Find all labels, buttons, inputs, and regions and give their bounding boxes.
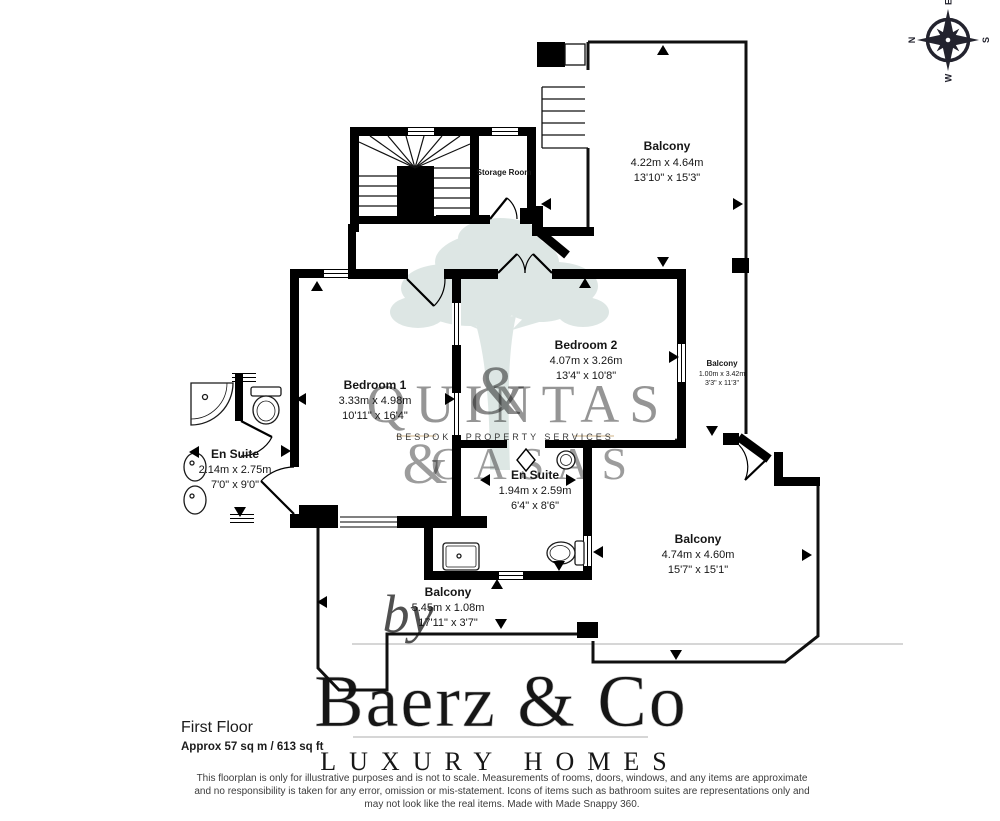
sink xyxy=(184,486,206,514)
room-label-bedroom-2: Bedroom 2 4.07m x 3.26m 13'4" x 10'8" xyxy=(550,338,623,382)
room-metric: 4.22m x 4.64m xyxy=(631,157,704,169)
room-metric: 2.14m x 2.75m xyxy=(199,464,272,476)
window xyxy=(408,127,434,136)
internal-glazed-opening xyxy=(452,303,461,345)
staircase xyxy=(359,136,470,218)
door xyxy=(490,198,517,219)
compass-rose: N E S W xyxy=(907,0,991,82)
brand-line1: QUINTAS xyxy=(367,374,670,434)
room-metric: 1.00m x 3.42m xyxy=(699,371,745,378)
room-metric: 1.94m x 2.59m xyxy=(499,485,572,497)
pillar xyxy=(577,622,598,638)
room-name: Bedroom 2 xyxy=(555,338,618,352)
agency-name: Baerz & Co xyxy=(314,661,687,743)
compass-west-label: W xyxy=(944,73,954,82)
window xyxy=(324,269,348,278)
external-stairs xyxy=(537,42,588,148)
room-label-bedroom-1: Bedroom 1 3.33m x 4.98m 10'11" x 16'4" xyxy=(339,378,412,422)
room-label-balcony-top: Balcony 4.22m x 4.64m 13'10" x 15'3" xyxy=(631,139,704,184)
floor-title: First Floor xyxy=(181,719,254,736)
room-metric: 4.74m x 4.60m xyxy=(662,549,735,561)
compass-east-label: E xyxy=(944,0,954,5)
floor-area: Approx 57 sq m / 613 sq ft xyxy=(181,741,324,753)
pillar xyxy=(732,258,749,273)
window xyxy=(230,514,254,523)
room-label-ensuite-left: En Suite 2.14m x 2.75m 7'0" x 9'0" xyxy=(199,447,272,491)
room-imperial: 13'10" x 15'3" xyxy=(634,172,701,184)
floorplan-page: & QUINTAS BESPOKE PROPERTY SERVICES & CA… xyxy=(0,0,1000,821)
toilet xyxy=(251,387,281,424)
room-label-balcony-small: Balcony 1.00m x 3.42m 3'3" x 11'3" xyxy=(699,359,745,387)
toilet xyxy=(547,541,584,565)
window xyxy=(677,344,686,382)
room-imperial: 17'11" x 3'7" xyxy=(418,617,478,629)
disclaimer-line-1: This floorplan is only for illustrative … xyxy=(197,773,808,784)
arrow-down-icon xyxy=(495,619,507,629)
compass-south-label: S xyxy=(981,37,991,43)
bathtub xyxy=(443,543,479,570)
compass-north-label: N xyxy=(907,37,917,44)
stair-newel xyxy=(397,166,434,218)
corner-shower xyxy=(191,383,233,425)
stair-landing xyxy=(565,44,585,65)
storage-room-label: Storage Room xyxy=(477,168,532,177)
room-metric: 4.07m x 3.26m xyxy=(550,355,623,367)
arrow-up-icon xyxy=(311,281,323,291)
agency-tagline: LUXURY HOMES xyxy=(320,747,679,776)
room-imperial: 15'7" x 15'1" xyxy=(668,564,728,576)
sink xyxy=(557,451,575,469)
room-name: Balcony xyxy=(644,139,691,153)
room-name: Bedroom 1 xyxy=(344,378,407,392)
arrow-up-icon xyxy=(657,45,669,55)
window xyxy=(340,516,397,528)
room-metric: 5.45m x 1.08m xyxy=(412,602,485,614)
window xyxy=(499,571,523,580)
arrow-up-icon xyxy=(491,579,503,589)
window xyxy=(492,127,518,136)
stair-landing-block xyxy=(537,42,565,67)
room-imperial: 3'3" x 11'3" xyxy=(705,380,739,387)
arrow-right-icon xyxy=(281,445,291,457)
compass-star xyxy=(917,9,979,71)
disclaimer-line-2: and no responsibility is taken for any e… xyxy=(194,786,809,797)
arrow-right-icon xyxy=(802,549,812,561)
arrow-down-icon xyxy=(670,650,682,660)
floorplan-canvas: & QUINTAS BESPOKE PROPERTY SERVICES & CA… xyxy=(0,0,1000,821)
room-name: Balcony xyxy=(425,585,472,599)
arrow-down-icon xyxy=(657,257,669,267)
room-label-balcony-right: Balcony 4.74m x 4.60m 15'7" x 15'1" xyxy=(662,532,735,576)
disclaimer-line-3: may not look like the real items. Made w… xyxy=(364,799,639,810)
room-name: Balcony xyxy=(675,532,722,546)
arrow-down-icon xyxy=(553,561,565,571)
room-name: En Suite xyxy=(211,447,259,461)
room-imperial: 7'0" x 9'0" xyxy=(211,479,259,491)
room-metric: 3.33m x 4.98m xyxy=(339,395,412,407)
arrow-down-icon xyxy=(706,426,718,436)
room-name: Balcony xyxy=(706,359,738,368)
room-name: En Suite xyxy=(511,468,559,482)
arrow-left-icon xyxy=(593,546,603,558)
room-imperial: 13'4" x 10'8" xyxy=(556,370,616,382)
arrow-right-icon xyxy=(733,198,743,210)
ensuite-partition xyxy=(235,373,243,421)
agency-watermark: by Baerz & Co LUXURY HOMES xyxy=(314,584,903,776)
room-imperial: 10'11" x 16'4" xyxy=(342,410,408,422)
room-imperial: 6'4" x 8'6" xyxy=(511,500,559,512)
